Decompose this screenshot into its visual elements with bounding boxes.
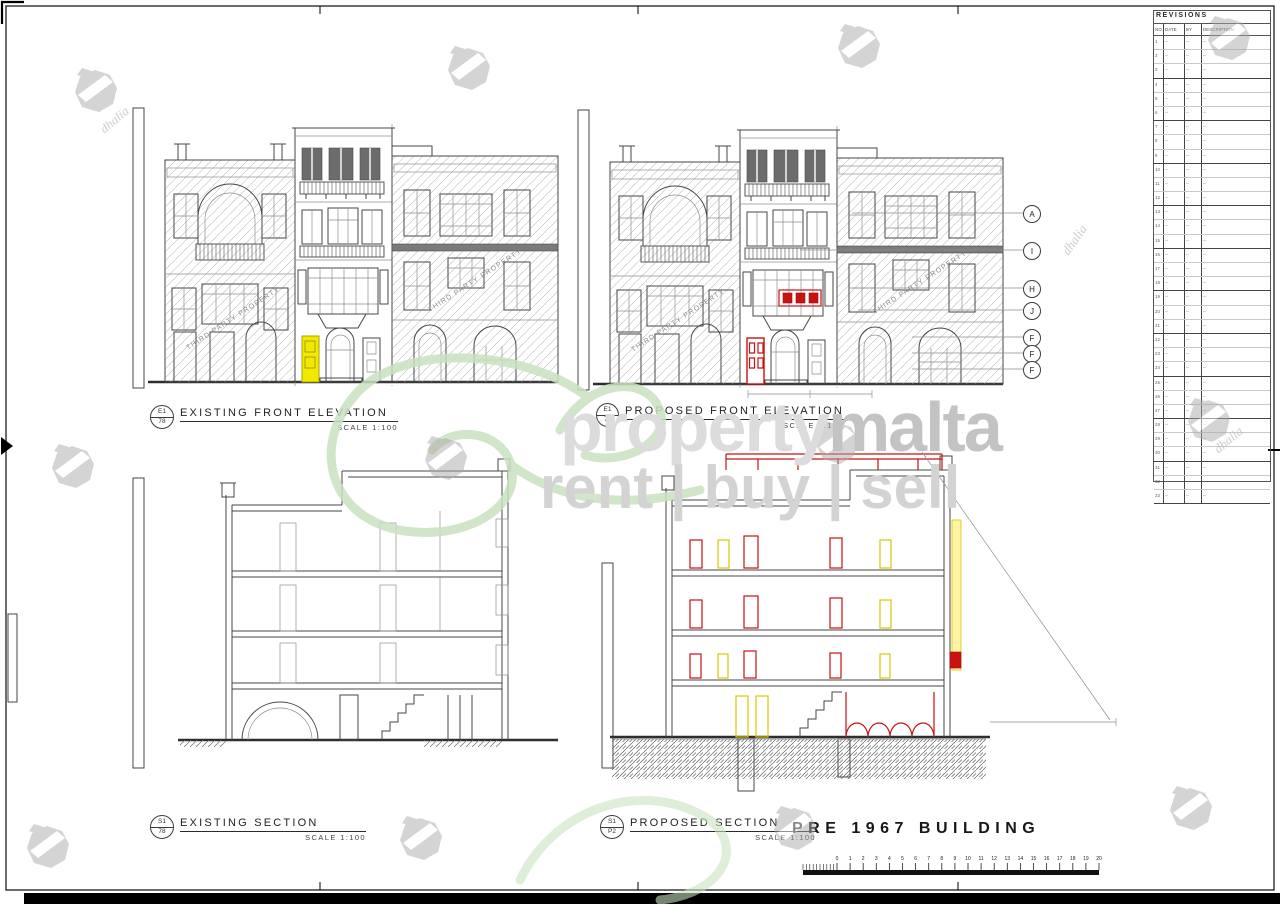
- scalebar-number: 0: [836, 856, 839, 862]
- scalebar-number: 5: [901, 856, 904, 862]
- revision-row: 14------: [1154, 220, 1270, 234]
- scalebar-number: 15: [1031, 856, 1037, 862]
- drawing-scale: SCALE 1:100: [625, 420, 844, 430]
- revision-row: 6------: [1154, 107, 1270, 121]
- revision-row: 31------: [1154, 462, 1270, 476]
- revision-row: 22------: [1154, 334, 1270, 348]
- existing-elevation-drawing: [133, 108, 558, 388]
- revision-row: 2------: [1154, 50, 1270, 64]
- revision-row: 19------: [1154, 291, 1270, 305]
- scalebar-number: 19: [1083, 856, 1089, 862]
- drawing-title: EXISTING FRONT ELEVATION: [180, 407, 398, 422]
- marker-J: J: [1023, 302, 1041, 320]
- scalebar-number: 18: [1070, 856, 1076, 862]
- revision-row: 20------: [1154, 306, 1270, 320]
- revision-row: 5------: [1154, 93, 1270, 107]
- scalebar-number: 17: [1057, 856, 1063, 862]
- marker-I: I: [1023, 242, 1041, 260]
- title-proposed-section: S1 P2 PROPOSED SECTION SCALE 1:100: [600, 815, 816, 842]
- revisions-table: REVISIONS NO. DATE BY DESCRIPTION 1-----…: [1153, 10, 1271, 482]
- marker-A: A: [1023, 205, 1041, 223]
- revisions-rows: 1------2------3------4------5------6----…: [1154, 36, 1270, 504]
- scalebar-number: 2: [862, 856, 865, 862]
- scalebar: 01234567891011121314151617181920: [795, 856, 1111, 880]
- scalebar-number: 4: [888, 856, 891, 862]
- revision-row: 1------: [1154, 36, 1270, 50]
- revisions-title: REVISIONS: [1154, 11, 1270, 24]
- proposed-elevation-drawing: [578, 110, 1023, 398]
- scalebar-numbers: 01234567891011121314151617181920: [795, 856, 1111, 864]
- revision-row: 12------: [1154, 192, 1270, 206]
- existing-section-drawing: [133, 459, 558, 768]
- scalebar-number: 6: [914, 856, 917, 862]
- revision-row: 17------: [1154, 263, 1270, 277]
- revision-row: 8------: [1154, 135, 1270, 149]
- drawing-linework: THIRD PARTY PROPERTY: [0, 0, 1280, 904]
- scalebar-number: 7: [927, 856, 930, 862]
- scalebar-number: 16: [1044, 856, 1050, 862]
- revision-row: 33------: [1154, 490, 1270, 504]
- revision-row: 16------: [1154, 249, 1270, 263]
- revision-row: 21------: [1154, 320, 1270, 334]
- title-proposed-elevation: E1 75 PROPOSED FRONT ELEVATION SCALE 1:1…: [596, 403, 844, 430]
- drawing-scale: SCALE 1:100: [180, 422, 398, 432]
- drawing-sheet: THIRD PARTY PROPERTY: [0, 0, 1280, 904]
- drawing-title: PROPOSED FRONT ELEVATION: [625, 405, 844, 420]
- scalebar-number: 11: [978, 856, 983, 862]
- revision-row: 30------: [1154, 447, 1270, 461]
- drawing-title: EXISTING SECTION: [180, 817, 366, 832]
- drawing-scale: SCALE 1:100: [630, 832, 816, 842]
- revision-row: 24------: [1154, 362, 1270, 376]
- ref-bubble: S1 P2: [600, 815, 624, 839]
- revision-row: 26------: [1154, 391, 1270, 405]
- scalebar-number: 12: [991, 856, 997, 862]
- ref-bubble: E1 78: [150, 405, 174, 429]
- scalebar-number: 3: [875, 856, 878, 862]
- scalebar-number: 1: [849, 856, 852, 862]
- marker-F3: F: [1023, 361, 1041, 379]
- revision-row: 7------: [1154, 121, 1270, 135]
- revision-row: 3------: [1154, 64, 1270, 78]
- revision-row: 27------: [1154, 405, 1270, 419]
- scalebar-number: 10: [965, 856, 971, 862]
- drawing-scale: SCALE 1:100: [180, 832, 366, 842]
- ref-bubble: S1 78: [150, 815, 174, 839]
- title-existing-section: S1 78 EXISTING SECTION SCALE 1:100: [150, 815, 366, 842]
- proposed-section-drawing: [602, 452, 1116, 791]
- revisions-header: NO. DATE BY DESCRIPTION: [1154, 24, 1270, 36]
- revision-row: 11------: [1154, 178, 1270, 192]
- scalebar-number: 9: [954, 856, 957, 862]
- title-existing-elevation: E1 78 EXISTING FRONT ELEVATION SCALE 1:1…: [150, 405, 398, 432]
- revision-row: 23------: [1154, 348, 1270, 362]
- revision-row: 15------: [1154, 235, 1270, 249]
- revision-row: 9------: [1154, 150, 1270, 164]
- ref-bubble: E1 75: [596, 403, 619, 427]
- revision-row: 4------: [1154, 79, 1270, 93]
- revision-row: 25------: [1154, 377, 1270, 391]
- marker-H: H: [1023, 280, 1041, 298]
- revision-row: 13------: [1154, 206, 1270, 220]
- scalebar-number: 8: [940, 856, 943, 862]
- revision-row: 28------: [1154, 419, 1270, 433]
- pre-1967-label: PRE 1967 BUILDING: [792, 820, 1040, 838]
- revision-row: 10------: [1154, 164, 1270, 178]
- scalebar-number: 20: [1096, 856, 1102, 862]
- revision-row: 18------: [1154, 277, 1270, 291]
- revision-row: 32------: [1154, 476, 1270, 490]
- scalebar-number: 13: [1005, 856, 1011, 862]
- drawing-title: PROPOSED SECTION: [630, 817, 816, 832]
- revision-row: 29------: [1154, 433, 1270, 447]
- scalebar-number: 14: [1018, 856, 1024, 862]
